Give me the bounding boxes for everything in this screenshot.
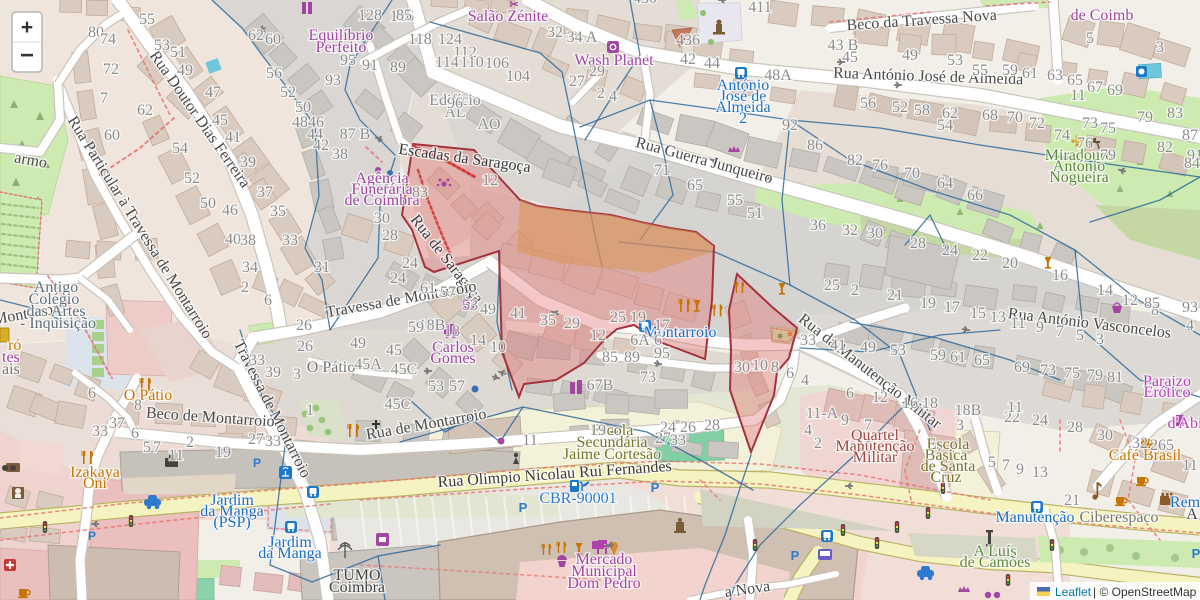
svg-text:8: 8: [771, 359, 779, 376]
svg-text:61: 61: [420, 280, 436, 297]
svg-text:73: 73: [640, 369, 656, 386]
svg-text:30: 30: [734, 359, 750, 376]
svg-text:| © OpenStreetMap: | © OpenStreetMap: [1093, 585, 1197, 599]
svg-text:118: 118: [408, 31, 431, 48]
svg-text:27: 27: [248, 431, 264, 448]
svg-text:128: 128: [358, 7, 382, 24]
svg-text:d'Abi: d'Abi: [1168, 415, 1200, 432]
svg-text:12: 12: [872, 389, 888, 406]
svg-text:30: 30: [867, 225, 883, 242]
svg-text:55: 55: [139, 11, 155, 28]
svg-text:2: 2: [241, 279, 249, 296]
svg-text:Erótico: Erótico: [1143, 384, 1190, 401]
svg-text:75: 75: [1064, 365, 1080, 382]
svg-text:25: 25: [824, 277, 840, 294]
svg-text:33: 33: [92, 423, 108, 440]
svg-text:64: 64: [937, 175, 953, 192]
svg-text:45C: 45C: [391, 361, 418, 378]
svg-text:30: 30: [374, 210, 390, 227]
svg-text:39: 39: [240, 154, 256, 171]
svg-text:59: 59: [930, 347, 946, 364]
svg-text:45A: 45A: [354, 356, 382, 373]
svg-text:81: 81: [1107, 369, 1123, 386]
svg-text:83: 83: [412, 184, 428, 201]
svg-text:11: 11: [1182, 457, 1197, 474]
svg-text:73: 73: [1082, 115, 1098, 132]
svg-text:14: 14: [1097, 282, 1113, 299]
svg-text:85: 85: [396, 7, 412, 24]
svg-text:Militar: Militar: [853, 449, 898, 466]
svg-text:82: 82: [1157, 139, 1173, 156]
svg-text:34: 34: [242, 259, 258, 276]
svg-text:33: 33: [282, 232, 298, 249]
svg-text:86: 86: [807, 137, 823, 154]
svg-text:69: 69: [1014, 359, 1030, 376]
svg-text:85: 85: [1144, 295, 1160, 312]
svg-text:56: 56: [860, 95, 876, 112]
svg-text:60: 60: [104, 127, 120, 144]
svg-text:P: P: [791, 548, 800, 563]
svg-text:5: 5: [143, 439, 151, 456]
svg-text:430: 430: [633, 0, 657, 7]
svg-text:67B: 67B: [587, 377, 614, 394]
svg-text:79: 79: [1137, 109, 1153, 126]
svg-text:56: 56: [266, 65, 282, 82]
svg-text:6: 6: [131, 425, 139, 442]
svg-text:3: 3: [1156, 39, 1164, 56]
svg-text:14: 14: [470, 332, 486, 349]
svg-text:2: 2: [739, 110, 747, 127]
svg-text:Oni: Oni: [83, 475, 108, 492]
svg-text:Leaflet: Leaflet: [1055, 585, 1092, 599]
svg-text:48: 48: [292, 114, 308, 131]
svg-text:Cruz: Cruz: [930, 469, 961, 486]
svg-text:47: 47: [205, 84, 221, 101]
svg-text:O Pátio: O Pátio: [307, 359, 355, 376]
svg-text:70: 70: [904, 165, 920, 182]
svg-text:62: 62: [137, 102, 153, 119]
svg-text:7: 7: [153, 439, 161, 456]
svg-text:49: 49: [860, 339, 876, 356]
svg-text:24: 24: [942, 242, 958, 259]
svg-text:CBR-90001: CBR-90001: [539, 490, 616, 507]
svg-text:76: 76: [1077, 135, 1093, 152]
svg-text:42: 42: [313, 137, 329, 154]
svg-text:7: 7: [100, 90, 108, 107]
svg-text:57: 57: [449, 378, 465, 395]
svg-text:Jaime Cortesão: Jaime Cortesão: [563, 446, 661, 463]
svg-text:4: 4: [804, 422, 812, 439]
svg-text:52: 52: [184, 170, 200, 187]
svg-text:2: 2: [597, 85, 605, 102]
svg-text:30: 30: [1097, 427, 1113, 444]
svg-text:8: 8: [134, 397, 142, 414]
svg-text:89: 89: [390, 59, 406, 76]
svg-text:85: 85: [602, 349, 618, 366]
svg-text:50: 50: [200, 195, 216, 212]
svg-text:16: 16: [1052, 267, 1068, 284]
svg-text:13: 13: [990, 309, 1006, 326]
svg-text:11: 11: [522, 432, 537, 449]
svg-text:45: 45: [386, 342, 402, 359]
svg-text:P: P: [1192, 546, 1200, 561]
svg-text:11: 11: [1007, 399, 1022, 416]
svg-text:37: 37: [109, 415, 125, 432]
svg-text:28: 28: [1067, 419, 1083, 436]
svg-text:Nogueira: Nogueira: [1049, 169, 1109, 186]
svg-text:61: 61: [950, 349, 966, 366]
svg-text:26: 26: [296, 317, 312, 334]
svg-text:114: 114: [435, 54, 458, 71]
svg-text:7: 7: [1002, 457, 1010, 474]
svg-text:AO: AO: [477, 116, 500, 133]
svg-text:71: 71: [654, 162, 670, 179]
svg-text:+: +: [21, 16, 33, 39]
svg-text:21: 21: [1064, 492, 1080, 509]
svg-text:(PSP): (PSP): [213, 514, 250, 531]
svg-text:49: 49: [177, 62, 193, 79]
svg-text:29: 29: [589, 63, 605, 80]
svg-text:96: 96: [447, 95, 463, 112]
svg-text:7: 7: [864, 417, 872, 434]
svg-text:45C: 45C: [385, 396, 412, 413]
svg-text:73: 73: [1040, 362, 1056, 379]
svg-text:95: 95: [654, 345, 670, 362]
svg-text:61: 61: [1022, 65, 1038, 82]
svg-text:6: 6: [846, 385, 854, 402]
svg-text:29: 29: [564, 315, 580, 332]
svg-text:22: 22: [972, 247, 988, 264]
svg-text:76: 76: [872, 157, 888, 174]
svg-text:P: P: [253, 456, 261, 470]
svg-text:18: 18: [444, 323, 460, 340]
svg-text:91: 91: [362, 57, 378, 74]
svg-text:33: 33: [249, 352, 265, 369]
svg-text:3: 3: [956, 417, 964, 434]
svg-text:31: 31: [314, 259, 330, 276]
svg-text:32: 32: [842, 222, 858, 239]
svg-text:92: 92: [782, 117, 798, 134]
svg-text:53: 53: [428, 378, 444, 395]
svg-text:4: 4: [1186, 317, 1194, 334]
svg-text:87 B: 87 B: [340, 126, 371, 143]
svg-text:5: 5: [1076, 327, 1084, 344]
svg-text:52: 52: [892, 99, 908, 116]
svg-text:26: 26: [297, 338, 313, 355]
svg-text:Gomes: Gomes: [430, 350, 475, 367]
svg-text:2: 2: [814, 435, 822, 452]
svg-text:41: 41: [510, 305, 526, 322]
svg-text:41: 41: [830, 337, 846, 354]
svg-text:P: P: [651, 480, 660, 495]
svg-text:33: 33: [800, 332, 816, 349]
svg-text:P: P: [519, 500, 528, 515]
svg-text:51: 51: [747, 205, 763, 222]
svg-text:60: 60: [265, 31, 281, 48]
svg-text:O Pátio: O Pátio: [124, 387, 172, 404]
svg-text:7: 7: [1056, 323, 1064, 340]
svg-text:95: 95: [340, 52, 356, 69]
svg-text:53: 53: [462, 297, 478, 314]
svg-text:11: 11: [1070, 87, 1085, 104]
svg-text:- Inquisição: - Inquisição: [20, 315, 96, 332]
svg-text:110: 110: [460, 54, 483, 71]
svg-text:19: 19: [920, 295, 936, 312]
svg-text:9: 9: [841, 412, 849, 429]
svg-text:6A: 6A: [630, 332, 650, 349]
svg-text:65: 65: [687, 177, 703, 194]
svg-text:89: 89: [624, 349, 640, 366]
svg-text:11: 11: [168, 447, 183, 464]
svg-text:65: 65: [1067, 72, 1083, 89]
svg-text:28: 28: [382, 227, 398, 244]
svg-text:Wash Planet: Wash Planet: [574, 52, 654, 69]
svg-text:48A: 48A: [764, 67, 792, 84]
svg-text:57: 57: [440, 284, 456, 301]
svg-text:28: 28: [910, 235, 926, 252]
svg-text:Dom Pedro: Dom Pedro: [567, 575, 640, 592]
svg-text:87: 87: [1182, 127, 1198, 144]
svg-text:79: 79: [1087, 367, 1103, 384]
svg-text:67: 67: [1087, 79, 1103, 96]
svg-text:12: 12: [1122, 292, 1138, 309]
svg-text:Coimbra: Coimbra: [329, 579, 385, 596]
svg-text:65: 65: [974, 352, 990, 369]
svg-text:63: 63: [1047, 67, 1063, 84]
svg-text:9: 9: [1036, 319, 1044, 336]
svg-text:6: 6: [88, 385, 96, 402]
svg-text:A: A: [1186, 506, 1198, 523]
svg-text:39: 39: [265, 364, 281, 381]
svg-text:49: 49: [480, 301, 496, 318]
svg-text:53: 53: [154, 37, 170, 54]
svg-text:59: 59: [1002, 62, 1018, 79]
svg-text:9: 9: [1016, 461, 1024, 478]
svg-text:69: 69: [1107, 82, 1123, 99]
svg-text:46: 46: [222, 202, 238, 219]
svg-text:de Coimb: de Coimb: [1071, 7, 1134, 24]
svg-text:40: 40: [225, 231, 241, 248]
svg-text:104: 104: [506, 68, 530, 85]
svg-text:10: 10: [490, 339, 506, 356]
svg-text:34 A: 34 A: [567, 29, 598, 46]
svg-text:75: 75: [1100, 120, 1116, 137]
svg-text:15: 15: [970, 305, 986, 322]
svg-text:21: 21: [887, 287, 903, 304]
svg-text:72: 72: [103, 61, 119, 78]
svg-text:5: 5: [1086, 30, 1094, 47]
svg-text:Manutenção: Manutenção: [995, 509, 1074, 526]
svg-text:2: 2: [851, 282, 859, 299]
svg-text:2: 2: [186, 434, 194, 451]
svg-text:da Manga: da Manga: [258, 545, 322, 562]
svg-text:1: 1: [306, 402, 314, 419]
svg-text:3: 3: [293, 366, 301, 383]
svg-text:de Camões: de Camões: [960, 554, 1031, 571]
svg-text:5: 5: [988, 454, 996, 471]
svg-text:ais: ais: [2, 361, 20, 378]
svg-text:Ciberespaco: Ciberespaco: [1079, 509, 1158, 526]
svg-text:28: 28: [704, 417, 720, 434]
svg-text:19: 19: [630, 309, 646, 326]
svg-text:74: 74: [1054, 127, 1070, 144]
svg-text:11-A: 11-A: [806, 405, 839, 422]
svg-text:55: 55: [727, 192, 743, 209]
svg-text:10: 10: [752, 357, 768, 374]
svg-text:265: 265: [1150, 437, 1174, 454]
svg-text:−: −: [20, 42, 34, 69]
svg-text:36: 36: [810, 217, 826, 234]
svg-text:17: 17: [944, 299, 960, 316]
svg-text:35: 35: [540, 312, 556, 329]
svg-text:24: 24: [1032, 412, 1048, 429]
svg-text:93: 93: [1182, 299, 1198, 316]
svg-text:11: 11: [1010, 315, 1025, 332]
svg-text:38: 38: [240, 232, 256, 249]
svg-text:3: 3: [1096, 331, 1104, 348]
svg-text:79: 79: [1100, 147, 1116, 164]
svg-text:37: 37: [257, 184, 273, 201]
svg-text:72: 72: [1029, 115, 1045, 132]
svg-text:42: 42: [680, 51, 696, 68]
svg-text:16 18: 16 18: [902, 395, 938, 412]
svg-text:59: 59: [408, 319, 424, 336]
svg-text:19: 19: [590, 422, 606, 439]
svg-text:Salão Zénite: Salão Zénite: [468, 8, 548, 25]
svg-text:32: 32: [547, 24, 563, 41]
svg-text:49: 49: [350, 335, 366, 352]
svg-text:51: 51: [170, 44, 186, 61]
svg-text:33: 33: [265, 433, 281, 450]
svg-text:4: 4: [801, 372, 809, 389]
svg-text:58: 58: [914, 102, 930, 119]
svg-text:45: 45: [842, 49, 858, 66]
svg-text:24: 24: [390, 270, 406, 287]
svg-text:66: 66: [967, 187, 983, 204]
svg-text:12: 12: [590, 327, 606, 344]
svg-text:82: 82: [847, 152, 863, 169]
svg-text:38: 38: [332, 146, 348, 163]
svg-text:19: 19: [215, 444, 231, 461]
svg-text:P: P: [88, 529, 96, 543]
svg-text:74: 74: [100, 31, 116, 48]
svg-text:32: 32: [1132, 435, 1148, 452]
svg-text:33: 33: [670, 432, 686, 449]
svg-text:53: 53: [890, 342, 906, 359]
svg-text:45: 45: [212, 112, 228, 129]
svg-text:12: 12: [482, 172, 498, 189]
svg-text:68: 68: [982, 107, 998, 124]
svg-text:13: 13: [1032, 464, 1048, 481]
svg-text:70: 70: [1007, 109, 1023, 126]
svg-text:35: 35: [270, 203, 286, 220]
svg-text:54: 54: [172, 140, 188, 157]
svg-text:4: 4: [609, 88, 617, 105]
svg-text:411: 411: [748, 0, 771, 16]
svg-text:93: 93: [325, 72, 341, 89]
svg-text:84: 84: [1184, 155, 1200, 172]
svg-text:52: 52: [280, 84, 296, 101]
svg-text:62: 62: [248, 27, 264, 44]
svg-text:436: 436: [676, 32, 700, 49]
svg-text:44: 44: [704, 55, 720, 72]
svg-text:83: 83: [1167, 105, 1183, 122]
svg-text:49: 49: [902, 47, 918, 64]
svg-text:27: 27: [655, 430, 671, 447]
svg-text:20: 20: [1002, 255, 1018, 272]
svg-text:55: 55: [972, 62, 988, 79]
svg-text:41: 41: [225, 129, 241, 146]
svg-text:6: 6: [264, 292, 272, 309]
svg-text:27: 27: [569, 73, 585, 90]
svg-text:de Coimbra: de Coimbra: [344, 192, 419, 209]
svg-text:25: 25: [610, 309, 626, 326]
svg-text:6: 6: [786, 365, 794, 382]
svg-text:54: 54: [937, 117, 953, 134]
svg-text:53: 53: [947, 52, 963, 69]
